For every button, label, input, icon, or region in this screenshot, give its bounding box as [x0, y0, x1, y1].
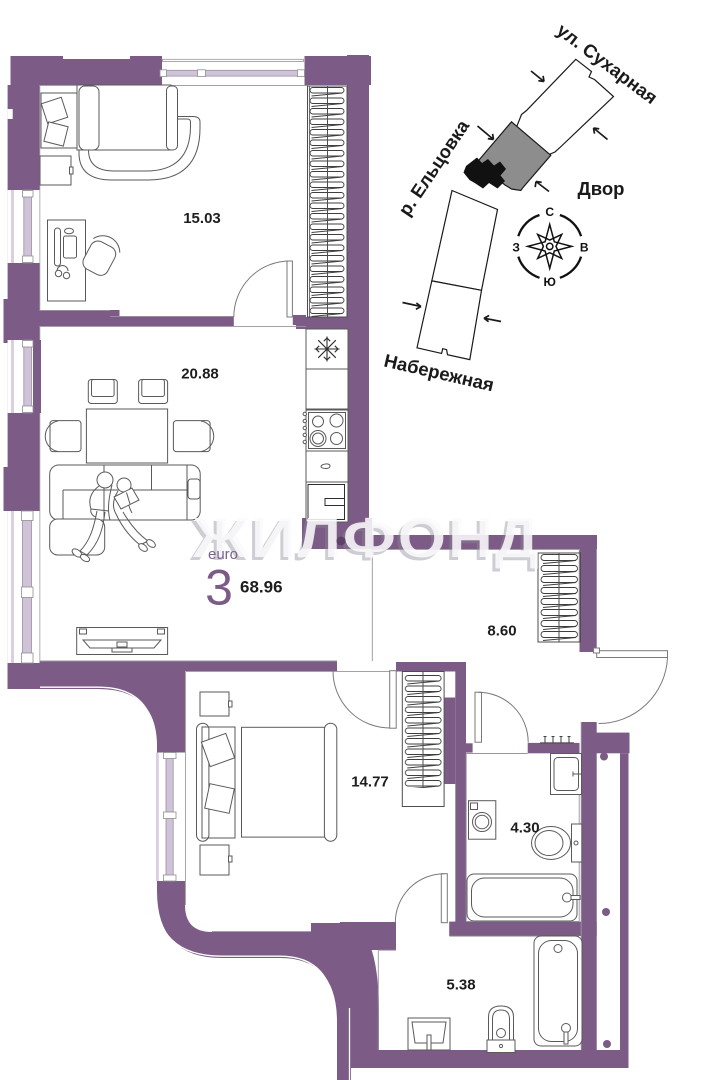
svg-text:8.60: 8.60	[487, 623, 516, 640]
svg-text:З: З	[512, 240, 520, 254]
svg-text:3: 3	[205, 560, 233, 616]
svg-text:Ю: Ю	[544, 275, 556, 289]
svg-text:68.96: 68.96	[240, 578, 283, 597]
svg-text:ЖИЛФОНД: ЖИЛФОНД	[192, 506, 541, 570]
svg-text:5.38: 5.38	[446, 977, 475, 994]
svg-text:С: С	[545, 205, 554, 219]
svg-text:В: В	[580, 240, 589, 254]
svg-text:Двор: Двор	[578, 178, 625, 199]
svg-text:20.88: 20.88	[181, 366, 219, 383]
svg-text:14.77: 14.77	[351, 774, 389, 791]
svg-text:15.03: 15.03	[183, 210, 221, 227]
svg-text:4.30: 4.30	[510, 820, 539, 837]
